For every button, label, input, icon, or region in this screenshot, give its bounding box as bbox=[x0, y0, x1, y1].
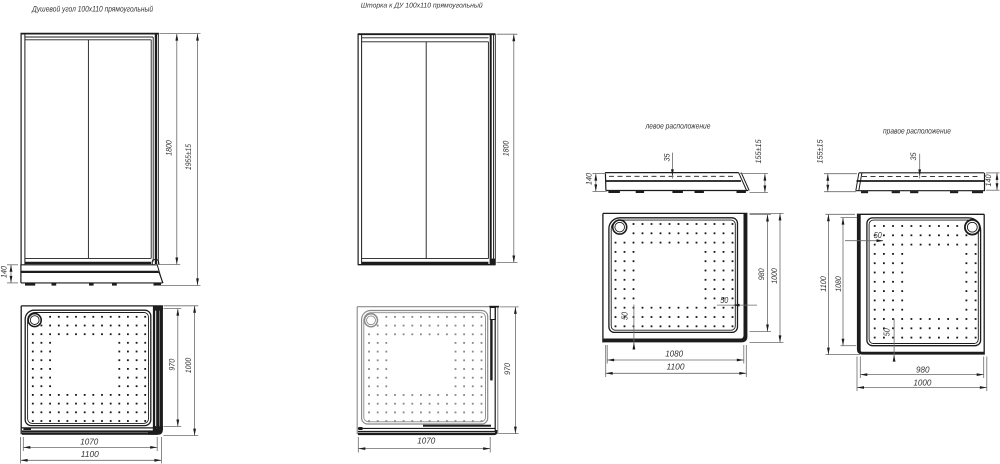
svg-text:1080: 1080 bbox=[665, 348, 683, 358]
svg-text:Душевой угол 100х110 прямоугол: Душевой угол 100х110 прямоугольный bbox=[31, 5, 153, 14]
svg-text:155±15: 155±15 bbox=[815, 139, 824, 163]
svg-text:140: 140 bbox=[584, 173, 593, 185]
svg-text:35: 35 bbox=[909, 152, 918, 160]
svg-text:1955±15: 1955±15 bbox=[184, 144, 193, 170]
svg-text:1100: 1100 bbox=[667, 362, 685, 372]
svg-text:35: 35 bbox=[663, 153, 672, 161]
svg-text:1070: 1070 bbox=[417, 436, 435, 446]
svg-text:140: 140 bbox=[0, 266, 8, 278]
svg-text:Шторка к ДУ 100х110 прямоуголь: Шторка к ДУ 100х110 прямоугольный bbox=[361, 2, 483, 10]
svg-text:970: 970 bbox=[503, 363, 512, 375]
svg-text:50: 50 bbox=[720, 295, 728, 305]
svg-text:1800: 1800 bbox=[164, 140, 173, 156]
svg-text:50: 50 bbox=[881, 328, 891, 336]
svg-text:1100: 1100 bbox=[819, 276, 828, 292]
svg-text:1000: 1000 bbox=[913, 378, 931, 388]
svg-text:155±15: 155±15 bbox=[754, 139, 763, 163]
svg-text:1070: 1070 bbox=[80, 437, 98, 447]
svg-text:1000: 1000 bbox=[184, 357, 193, 373]
svg-text:140: 140 bbox=[984, 174, 993, 186]
svg-text:980: 980 bbox=[757, 268, 766, 280]
svg-text:970: 970 bbox=[168, 358, 177, 370]
svg-text:1000: 1000 bbox=[770, 268, 779, 284]
svg-text:1080: 1080 bbox=[834, 276, 843, 292]
svg-text:1100: 1100 bbox=[81, 449, 99, 459]
svg-text:левое расположение: левое расположение bbox=[645, 122, 711, 131]
svg-text:980: 980 bbox=[916, 365, 930, 375]
svg-text:1800: 1800 bbox=[501, 140, 510, 156]
svg-text:правое расположение: правое расположение bbox=[883, 126, 951, 135]
svg-text:50: 50 bbox=[874, 230, 882, 240]
svg-text:50: 50 bbox=[620, 312, 630, 320]
